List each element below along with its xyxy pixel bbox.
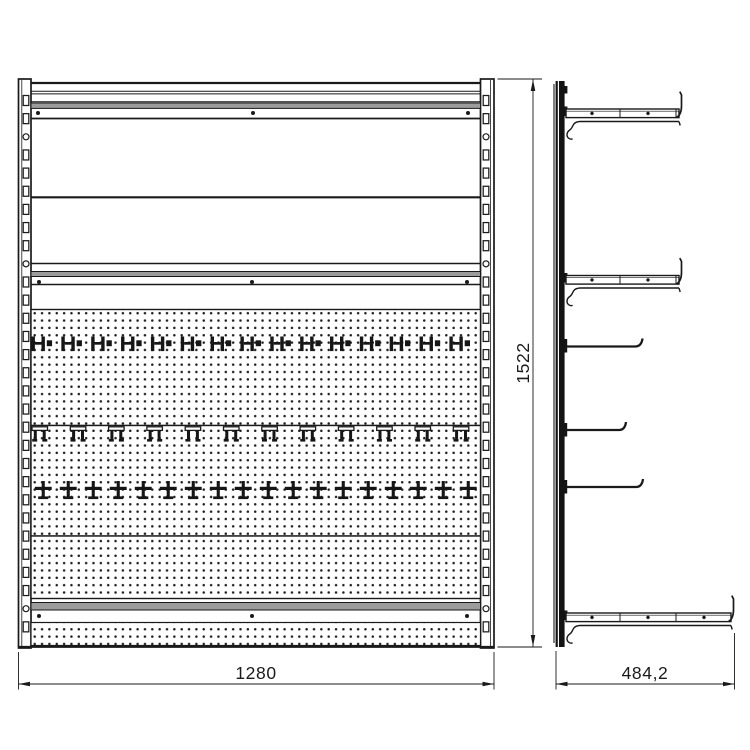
post-top-tab	[565, 86, 568, 94]
pegboard	[18, 310, 494, 647]
screw-dot	[466, 111, 470, 115]
screw-dot	[250, 280, 254, 284]
mid-rail-gray-band	[31, 272, 481, 277]
bottom-rail-gray-band	[31, 603, 481, 611]
dim-width-label: 1280	[235, 663, 276, 683]
technical-drawing-canvas: 1280 1522 484,2	[0, 0, 750, 750]
pegboard-panel-base-strip	[31, 623, 481, 646]
front-right-upright	[481, 79, 495, 648]
dim-depth-label: 484,2	[622, 663, 669, 683]
screw-dot	[250, 614, 254, 618]
screw-dot	[37, 280, 41, 284]
pegboard-panel-lower	[31, 536, 481, 599]
screw-dot	[465, 614, 469, 618]
pegboard-panel-upper	[31, 310, 481, 426]
front-left-upright	[19, 79, 32, 648]
top-rail-gray-band	[31, 103, 481, 108]
dim-height-label: 1522	[513, 342, 533, 383]
screw-dot	[251, 111, 255, 115]
screw-dot	[37, 614, 41, 618]
screw-dot	[465, 280, 469, 284]
pegboard-panel-middle	[31, 426, 481, 537]
screw-dot	[36, 111, 40, 115]
